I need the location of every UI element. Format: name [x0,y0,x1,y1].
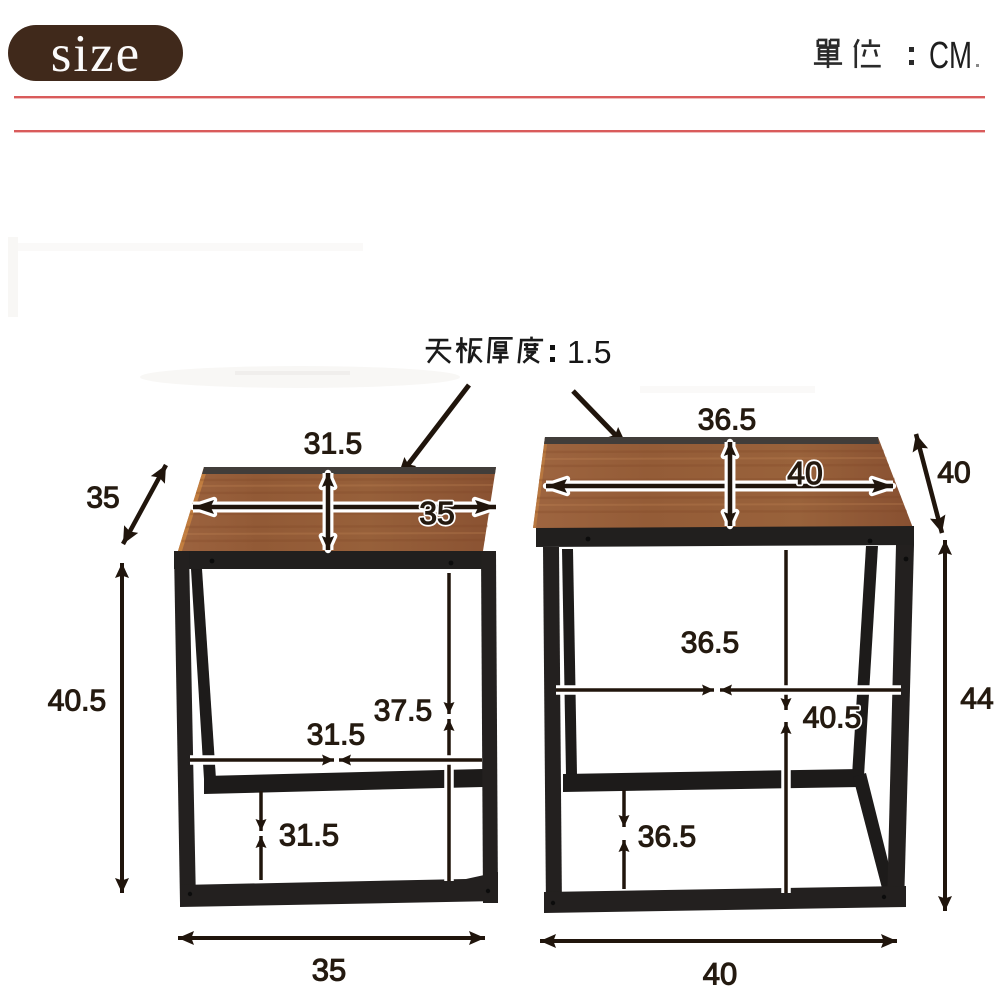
svg-text:36.5: 36.5 [681,627,739,660]
svg-text:35: 35 [86,482,119,515]
svg-text:CM: CM [929,35,972,77]
svg-text:37.5: 37.5 [374,695,432,728]
svg-text:31.5: 31.5 [307,719,365,752]
svg-text:36.5: 36.5 [698,404,756,437]
svg-text:35: 35 [419,495,455,531]
svg-text:40: 40 [703,957,737,992]
svg-text:1.5: 1.5 [567,334,611,370]
svg-text:44: 44 [960,683,993,716]
svg-text:31.5: 31.5 [304,428,362,461]
svg-text:40.5: 40.5 [803,702,861,735]
svg-text:40: 40 [787,455,823,491]
svg-text:36.5: 36.5 [638,821,696,854]
svg-text:40: 40 [937,457,970,490]
svg-text:35: 35 [312,953,346,988]
svg-text:40.5: 40.5 [48,685,106,718]
svg-text:31.5: 31.5 [279,818,339,853]
svg-text:size: size [51,25,141,83]
